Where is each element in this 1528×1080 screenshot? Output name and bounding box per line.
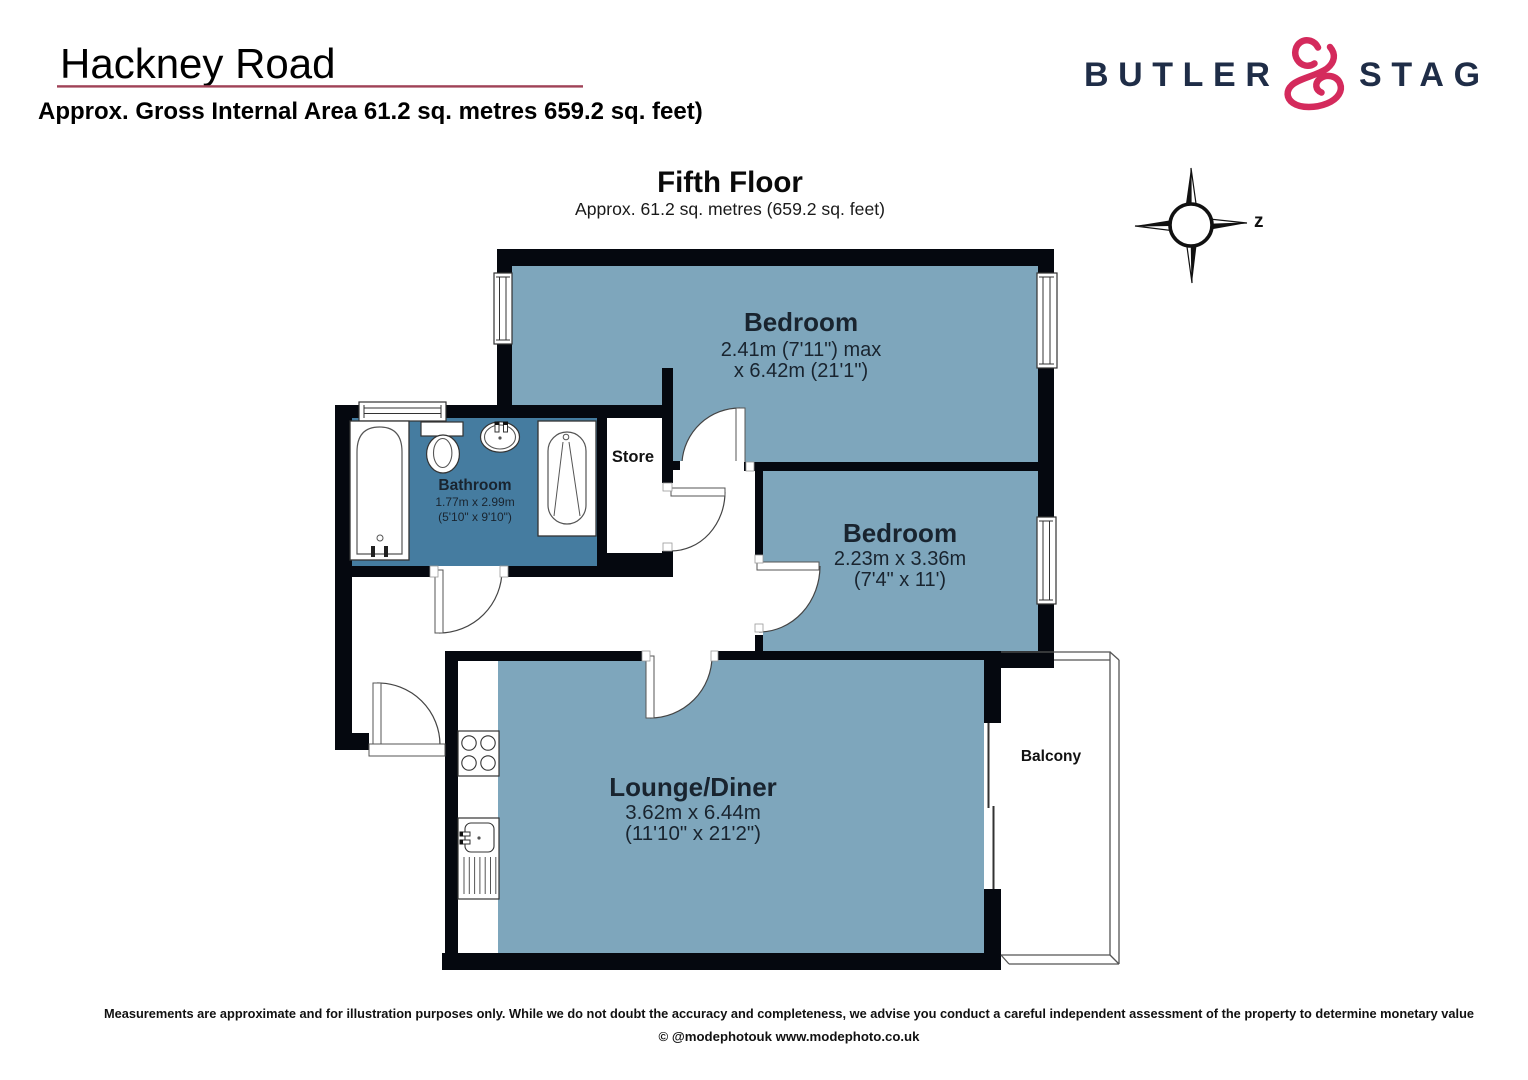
svg-text:(11'10" x 21'2"): (11'10" x 21'2") — [625, 822, 761, 845]
svg-text:Fifth Floor: Fifth Floor — [657, 166, 803, 199]
svg-text:(5'10" x 9'10"): (5'10" x 9'10") — [438, 510, 512, 524]
svg-text:STAG: STAG — [1359, 56, 1490, 94]
svg-text:x 6.42m (21'1"): x 6.42m (21'1") — [734, 360, 868, 382]
svg-text:Bathroom: Bathroom — [438, 477, 511, 494]
svg-text:© @modephotouk www.modephoto.c: © @modephotouk www.modephoto.co.uk — [659, 1029, 921, 1044]
svg-text:Lounge/Diner: Lounge/Diner — [609, 772, 777, 802]
svg-text:1.77m x 2.99m: 1.77m x 2.99m — [435, 495, 514, 509]
svg-text:2.41m (7'11") max: 2.41m (7'11") max — [721, 339, 882, 361]
svg-text:(7'4" x 11'): (7'4" x 11') — [854, 569, 946, 591]
svg-text:z: z — [1254, 211, 1264, 232]
svg-text:3.62m x 6.44m: 3.62m x 6.44m — [625, 801, 761, 824]
svg-text:2.23m x 3.36m: 2.23m x 3.36m — [834, 548, 966, 570]
svg-text:Hackney Road: Hackney Road — [60, 40, 335, 87]
svg-text:Measurements are approximate a: Measurements are approximate and for ill… — [104, 1006, 1474, 1021]
svg-text:Bedroom: Bedroom — [843, 518, 957, 548]
svg-text:Bedroom: Bedroom — [744, 307, 858, 337]
svg-text:BUTLER: BUTLER — [1084, 56, 1279, 94]
svg-text:Store: Store — [612, 448, 654, 466]
svg-text:Approx. 61.2 sq. metres (659.2: Approx. 61.2 sq. metres (659.2 sq. feet) — [575, 199, 885, 219]
svg-text:Balcony: Balcony — [1021, 748, 1082, 765]
svg-text:Approx. Gross Internal Area 61: Approx. Gross Internal Area 61.2 sq. met… — [38, 98, 703, 125]
